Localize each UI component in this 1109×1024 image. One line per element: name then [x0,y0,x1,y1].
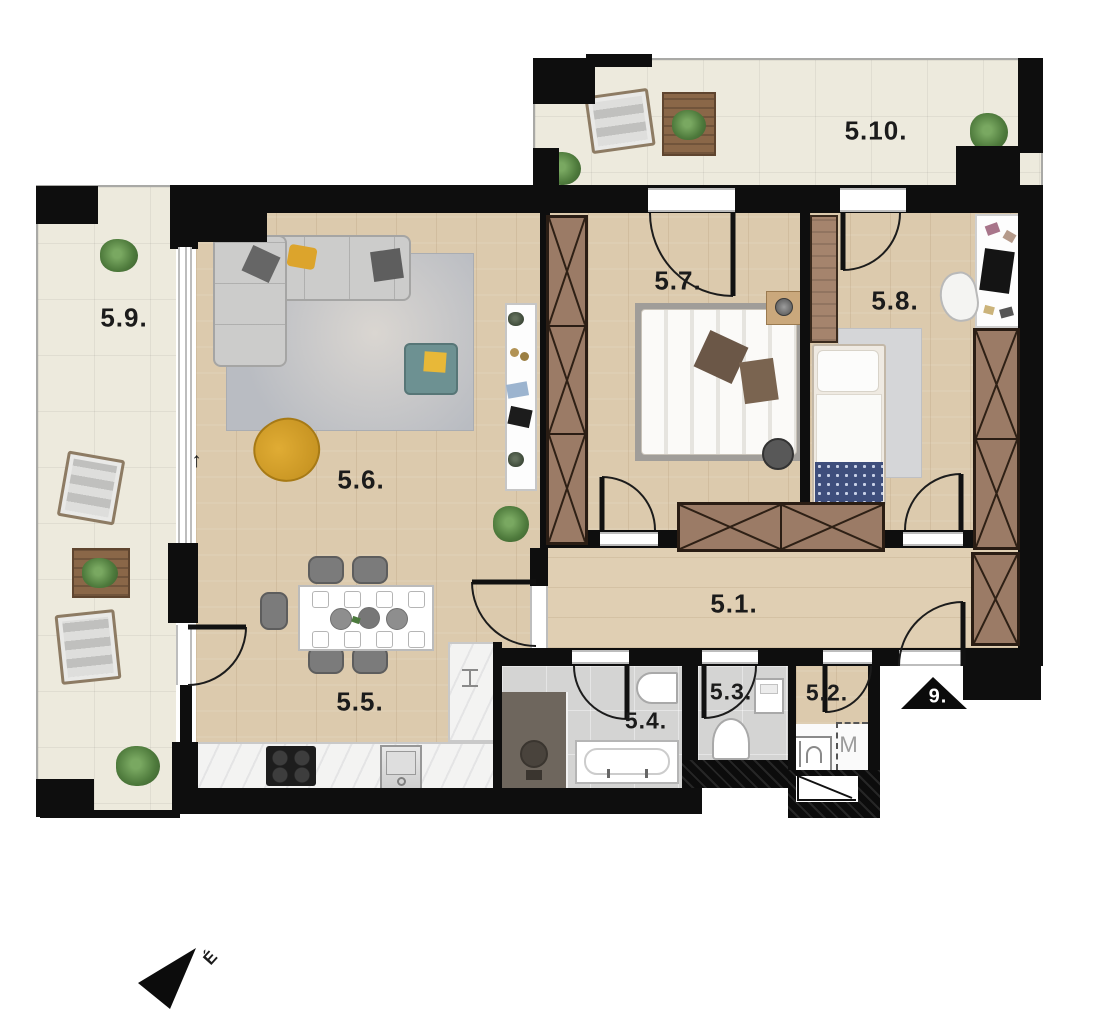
door-threshold [840,188,906,212]
entry-corner [963,648,1041,700]
bed-58-duvet [816,394,882,464]
desk-laptop [979,248,1015,294]
wall [1018,58,1043,153]
side-table-57 [762,438,794,470]
bed-58-pillow [817,350,879,392]
west-wall-low [180,683,192,743]
wall-kitchen-54 [493,642,502,790]
room-label-5-5: 5.5. [336,687,383,718]
ottoman-pillow-yellow [423,351,446,372]
dining-chair [352,556,388,584]
wall [40,810,180,818]
window-west [178,247,192,543]
room-label-5-2: 5.2. [806,680,848,707]
stairs-shaft-icon [796,776,858,802]
wardrobe-58-side [810,215,838,343]
wall-54-53 [682,666,698,760]
door-threshold [600,532,658,546]
shower [502,692,568,788]
balcony-door-threshold [176,625,192,685]
floor-plan: 5.1. 5.2. 5.3. 5.4. 5.5. 5.6. 5.7. 5.8. … [0,0,1109,1024]
west-wall-mid [168,543,198,623]
balcony-lounger-1 [57,450,126,525]
sideboard-plant-bottom-icon [508,452,524,467]
room-label-5-9: 5.9. [100,303,147,334]
wall-52-right [868,666,880,770]
balcony-lounger-2 [55,609,122,685]
wall [533,148,559,190]
door-threshold [572,650,629,664]
toilet-54 [636,672,678,704]
wardrobe-58 [973,328,1020,550]
sideboard-plant-top-icon [508,312,524,326]
hallway-51-floor [540,548,1020,648]
washing-machine [794,736,832,772]
hall-wardrobe-right [971,552,1020,646]
terrace-table-plant-icon [672,110,706,140]
wall [586,54,652,67]
room-label-5-10: 5.10. [845,116,908,147]
sideboard-bowls [510,348,519,357]
sofa-pillow-dark-2 [370,248,404,282]
toilet-53 [712,718,750,760]
door-threshold [702,650,758,664]
dining-chair [260,592,288,630]
wall [956,146,1020,190]
level-arrow: ↑ [191,449,203,473]
balcony-plant-top-icon [100,239,138,272]
door-threshold [823,650,872,664]
room-label-5-1: 5.1. [710,589,757,620]
bathtub [575,740,679,784]
washing-machine-label: M [839,732,858,758]
south-wall [172,788,702,814]
entrance-label: 9. [929,686,948,709]
door-threshold [648,188,735,212]
bed-58-blanket-blue [815,462,883,502]
wall-53-52 [788,666,796,770]
wall-53-bottom [682,760,788,788]
room-label-5-8: 5.8. [871,286,918,317]
kitchen-sink [380,745,422,790]
wardrobe-57 [546,215,588,545]
balcony-table-plant-icon [82,558,118,588]
room-label-5-4: 5.4. [625,708,667,735]
room-label-5-7: 5.7. [654,266,701,297]
cooktop [266,746,316,786]
bed-57-pillow-2 [739,358,779,404]
nightstand-57 [766,291,802,325]
sink-53 [754,678,784,714]
east-wall [1018,185,1043,666]
entry-threshold [899,650,965,666]
door-threshold [903,532,963,546]
living-plant-icon [493,506,529,542]
west-wall-top [170,185,198,249]
sofa-pillow-yellow [286,244,317,271]
kitchen-counter [196,742,495,790]
north-wall [172,185,1040,213]
hall-wardrobe [677,502,885,552]
dining-table [298,585,434,651]
room-label-5-6: 5.6. [337,465,384,496]
balcony-plant-bottom-icon [116,746,160,786]
wall-55-51 [530,548,548,588]
door-threshold [530,586,548,648]
dining-chair [308,556,344,584]
north-arrow-icon [138,948,196,1009]
wall-57-58 [800,213,810,543]
wall [36,186,98,224]
room-label-5-3: 5.3. [710,679,752,706]
kitchen-tall-cabinet [448,642,495,742]
north-label: É [199,947,222,970]
